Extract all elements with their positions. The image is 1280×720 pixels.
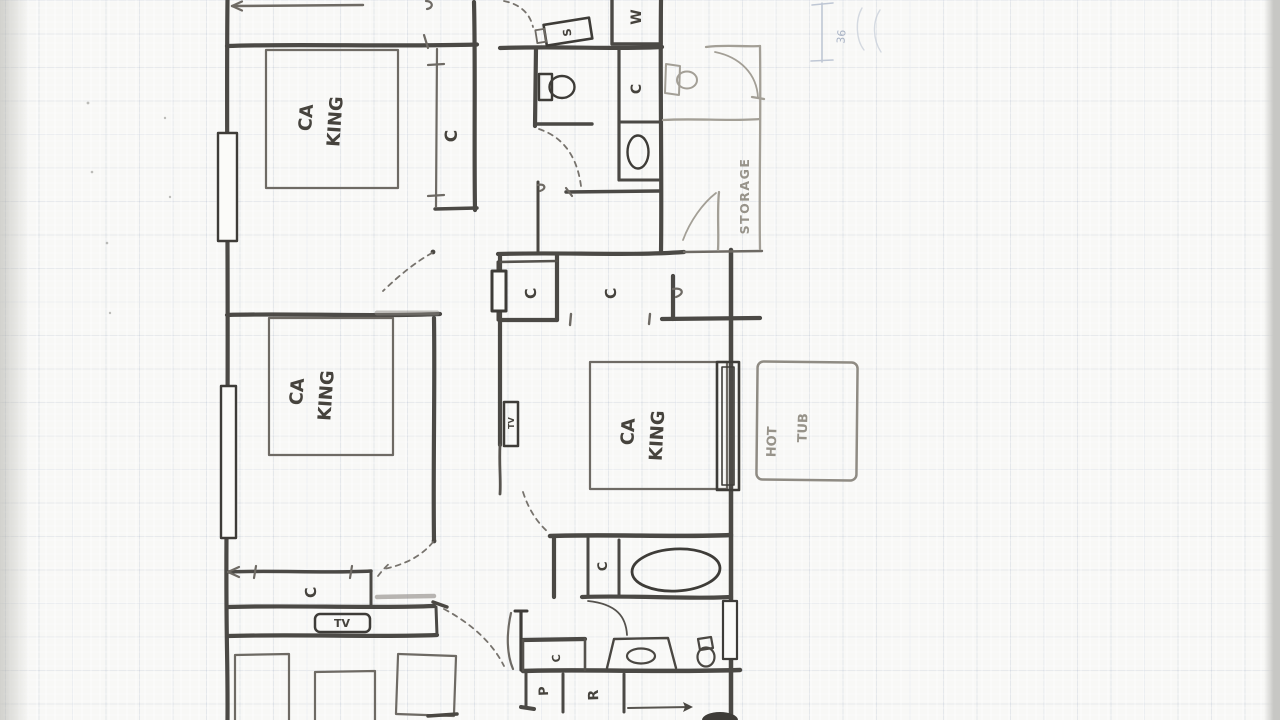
faint-scribble	[857, 8, 881, 52]
walls-light	[663, 46, 858, 481]
closet-label: C	[602, 287, 621, 300]
door-hook	[426, 1, 432, 9]
wall-segment	[226, 0, 227, 720]
storage-door-arc	[715, 52, 758, 98]
tick	[254, 566, 256, 578]
wall-segment	[228, 635, 437, 636]
closet-front	[498, 261, 557, 262]
storage-top-wall	[706, 46, 760, 47]
storage-mid-wall	[663, 119, 760, 120]
wall-segment	[550, 535, 731, 536]
wall-segment	[435, 208, 477, 209]
wall-segment	[498, 252, 684, 254]
shelf-box-small	[535, 29, 546, 43]
vanity-sink	[627, 649, 655, 664]
tick	[570, 314, 571, 325]
tick	[428, 195, 444, 196]
door-swing-arc	[384, 542, 433, 569]
wall-segment	[731, 250, 732, 618]
window	[492, 271, 506, 311]
door-swing-arc	[523, 492, 548, 532]
chair-2	[315, 671, 375, 720]
door-swing-arc	[539, 129, 581, 186]
wall-light-lower	[500, 445, 501, 494]
hot-tub-label-line1: HOT	[764, 426, 780, 457]
door-header	[377, 596, 434, 597]
wall-segment	[535, 48, 536, 126]
wall-segment	[521, 707, 534, 709]
cabinet-top-edge	[523, 639, 585, 640]
door-swing-arc	[444, 609, 504, 666]
partial-wall	[232, 5, 363, 6]
dimension-value: 36	[834, 29, 848, 44]
wall-segment	[227, 45, 477, 47]
toilet-bowl	[550, 76, 575, 98]
wall-segment	[500, 47, 662, 48]
bed-2-label-line2: KING	[314, 370, 338, 422]
closet-slider-line	[436, 49, 437, 207]
bed-2-label-line1: CA	[286, 377, 309, 406]
wall-segment	[566, 191, 659, 192]
window	[221, 386, 236, 538]
chair-3-corner	[428, 714, 457, 716]
door-leaf-curved	[508, 613, 513, 669]
tick	[649, 314, 650, 324]
closet-label: C	[629, 84, 645, 94]
chair-1	[235, 654, 289, 720]
wall-segment	[228, 571, 371, 572]
tick	[428, 64, 444, 65]
toilet-2-bowl	[698, 648, 715, 667]
storage-right-wall	[760, 46, 761, 249]
hot-tub-label-line2: TUB	[795, 413, 811, 443]
closet-label: C	[522, 287, 541, 300]
kitchen-arrow	[628, 707, 690, 708]
tv-wall-label: TV	[507, 416, 516, 428]
storage-door-swing	[683, 193, 716, 240]
washer-label: W	[629, 9, 645, 24]
closet-label: C	[596, 561, 612, 572]
wall-segment	[228, 606, 434, 607]
sink-oval	[628, 136, 649, 169]
bathtub	[631, 547, 721, 594]
shelf-label: S	[561, 28, 575, 38]
bed-3-label-line1: CA	[617, 418, 639, 446]
pencil-specks	[87, 102, 172, 315]
wall-light-cont	[684, 251, 762, 252]
wall-segment	[436, 607, 437, 635]
pantry-label: P	[537, 686, 552, 696]
floor-plan-drawing: CA KING CA KING CA KING C C C C C C C W …	[0, 0, 1280, 720]
storage-label: STORAGE	[737, 158, 752, 235]
wall-segment	[582, 596, 731, 597]
window	[218, 133, 237, 241]
door-swing-arc	[504, 1, 533, 27]
closet-label: C	[550, 654, 564, 663]
door-swing-arc	[383, 253, 432, 291]
bed-1-label-line2: KING	[323, 96, 347, 148]
tick	[350, 566, 352, 578]
closet-label: C	[442, 130, 462, 142]
door-swing-arc	[378, 562, 391, 576]
chair-3	[396, 654, 456, 716]
door-arc-small	[588, 601, 627, 635]
tv-living-label: TV	[334, 617, 351, 630]
window	[723, 601, 737, 659]
closet-label: C	[302, 586, 321, 599]
bed-3-label-line2: KING	[646, 410, 670, 462]
wall-segment	[662, 318, 760, 319]
tick	[752, 97, 764, 99]
wall-segment	[523, 670, 740, 671]
floor-plan-sketch: CA KING CA KING CA KING C C C C C C C W …	[0, 0, 1280, 720]
storage-door-leaf	[718, 192, 719, 250]
wall-segment	[474, 2, 475, 210]
wall-segment	[434, 318, 435, 540]
bed-1-label-line1: CA	[295, 103, 318, 132]
fridge-label: R	[586, 689, 602, 701]
